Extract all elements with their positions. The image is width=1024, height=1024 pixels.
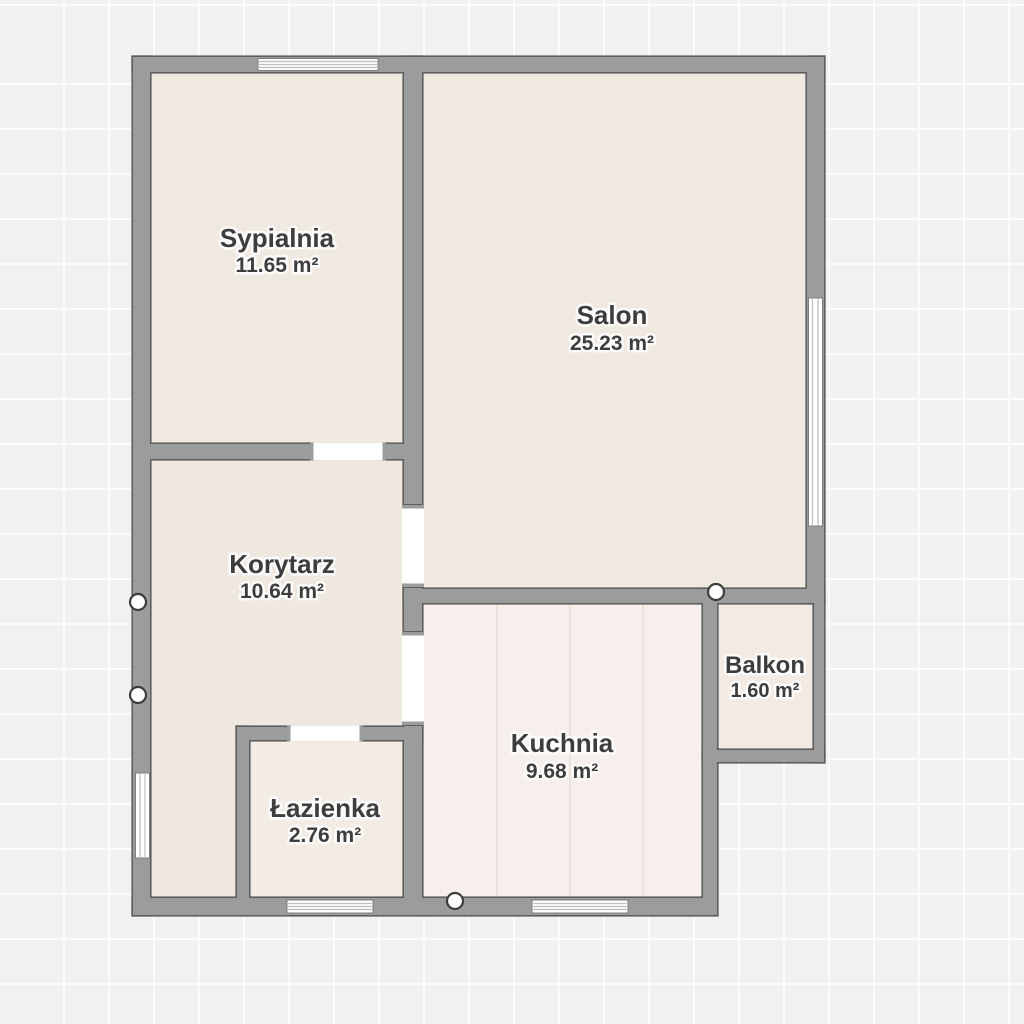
window-lazienka-bottom[interactable] xyxy=(287,900,373,913)
wall-balkon-right[interactable] xyxy=(814,603,824,762)
room-area-lazienka: 2.76 m² xyxy=(289,824,361,847)
room-area-balkon: 1.60 m² xyxy=(731,680,800,702)
floor-plan: Sypialnia 11.65 m² Salon 25.23 m² Koryta… xyxy=(0,0,1024,1024)
door-opening-lazienka[interactable] xyxy=(287,726,363,742)
door-cap xyxy=(310,443,314,461)
room-floor-salon[interactable] xyxy=(420,70,810,591)
door-cap xyxy=(402,505,424,509)
room-area-sypialnia: 11.65 m² xyxy=(236,254,319,277)
wall-sypialnia-salon[interactable] xyxy=(404,57,422,504)
room-area-kuchnia: 9.68 m² xyxy=(526,760,598,783)
window-korytarz-left[interactable] xyxy=(136,773,150,858)
room-name-lazienka: Łazienka xyxy=(270,793,380,823)
door-cap xyxy=(360,726,364,742)
floor-plan-canvas: Sypialnia 11.65 m² Salon 25.23 m² Koryta… xyxy=(0,0,1024,1024)
door-opening-korytarz-salon[interactable] xyxy=(402,505,424,587)
room-name-balkon: Balkon xyxy=(725,652,805,679)
window-salon-right[interactable] xyxy=(809,298,823,526)
wall-lazienka-kuchnia[interactable] xyxy=(404,726,422,898)
door-cap xyxy=(402,632,424,636)
room-name-sypialnia: Sypialnia xyxy=(220,223,335,253)
wall-lazienka-left[interactable] xyxy=(237,727,249,898)
door-cap xyxy=(402,584,424,588)
room-area-korytarz: 10.64 m² xyxy=(240,580,324,603)
room-name-korytarz: Korytarz xyxy=(229,549,334,579)
wall-point-marker[interactable] xyxy=(130,594,146,610)
wall-point-marker[interactable] xyxy=(130,687,146,703)
window-sypialnia-top[interactable] xyxy=(258,59,378,71)
door-hinge-marker[interactable] xyxy=(447,893,463,909)
wall-top[interactable] xyxy=(133,57,824,72)
door-hinge-marker[interactable] xyxy=(708,584,724,600)
door-opening-korytarz-kuchnia[interactable] xyxy=(402,632,424,725)
window-kuchnia-bottom[interactable] xyxy=(532,900,628,913)
door-opening-sypialnia[interactable] xyxy=(310,443,386,461)
room-name-kuchnia: Kuchnia xyxy=(511,728,614,758)
door-cap xyxy=(287,726,291,742)
door-cap xyxy=(383,443,387,461)
room-name-salon: Salon xyxy=(577,300,648,330)
door-cap xyxy=(402,722,424,726)
room-area-salon: 25.23 m² xyxy=(570,332,654,355)
wall-bottom[interactable] xyxy=(133,898,717,915)
wall-balkon-bottom[interactable] xyxy=(703,750,824,762)
wall-salon-kuchnia[interactable] xyxy=(404,589,717,603)
